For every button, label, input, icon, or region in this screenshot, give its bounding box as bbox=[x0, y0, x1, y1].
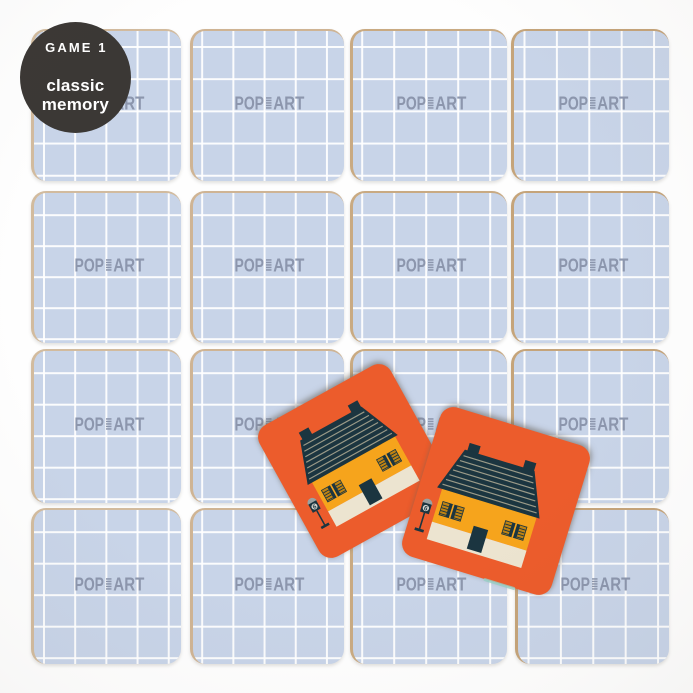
svg-text:POP: POP bbox=[397, 259, 427, 274]
svg-text:ART: ART bbox=[113, 418, 144, 433]
svg-text:ART: ART bbox=[435, 578, 466, 593]
svg-text:ART: ART bbox=[274, 578, 305, 593]
svg-text:POP: POP bbox=[560, 578, 590, 593]
svg-text:ART: ART bbox=[597, 97, 628, 112]
svg-text:POP: POP bbox=[235, 97, 265, 112]
svg-text:POP: POP bbox=[558, 97, 588, 112]
svg-text:ART: ART bbox=[113, 578, 144, 593]
svg-text:ART: ART bbox=[597, 418, 628, 433]
svg-text:ART: ART bbox=[597, 259, 628, 274]
svg-text:POP: POP bbox=[74, 578, 104, 593]
svg-text:POP: POP bbox=[235, 578, 265, 593]
svg-text:POP: POP bbox=[74, 418, 104, 433]
svg-text:POP: POP bbox=[74, 259, 104, 274]
svg-text:POP: POP bbox=[397, 578, 427, 593]
svg-text:ART: ART bbox=[274, 259, 305, 274]
svg-text:ART: ART bbox=[435, 97, 466, 112]
svg-text:POP: POP bbox=[397, 97, 427, 112]
svg-text:ART: ART bbox=[113, 259, 144, 274]
svg-text:ART: ART bbox=[599, 578, 630, 593]
svg-text:POP: POP bbox=[235, 259, 265, 274]
svg-text:POP: POP bbox=[558, 259, 588, 274]
svg-text:POP: POP bbox=[558, 418, 588, 433]
svg-text:ART: ART bbox=[274, 97, 305, 112]
svg-text:ART: ART bbox=[435, 259, 466, 274]
